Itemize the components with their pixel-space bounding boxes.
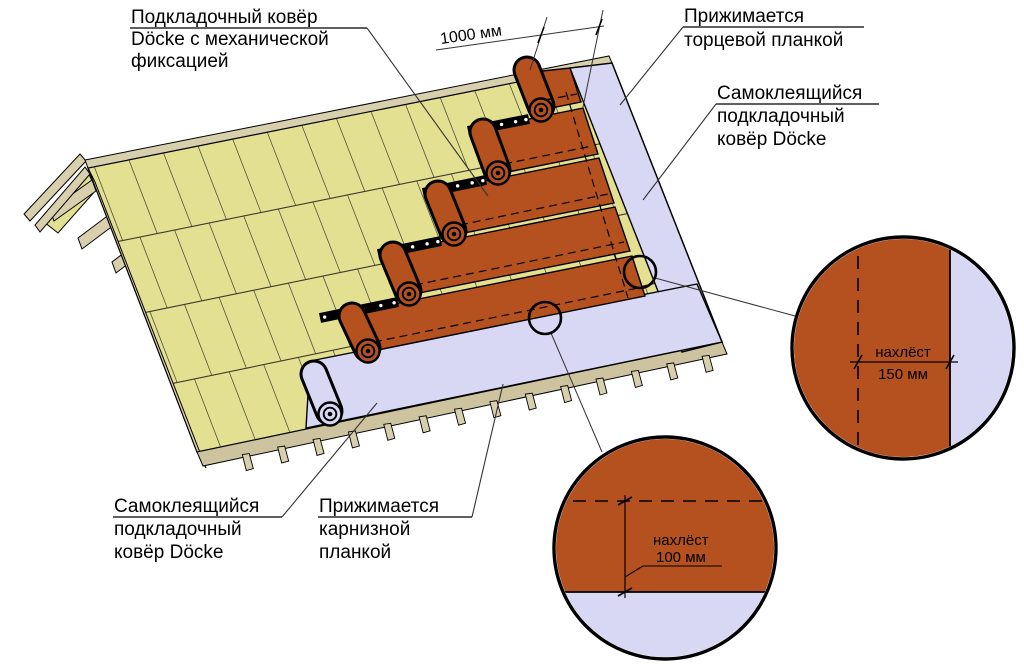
roll-spiral-center — [496, 171, 501, 176]
label-line: Подкладочный ковёр — [131, 7, 318, 28]
label-line: Самоклеящийся — [114, 496, 259, 517]
rafter-tail — [384, 423, 395, 440]
label-leader — [620, 27, 683, 105]
roll-spiral-center — [366, 349, 371, 354]
rafter-tail — [242, 454, 253, 471]
roll-spiral-center — [328, 412, 333, 417]
rafter-tail — [667, 363, 678, 380]
rafter-tail — [525, 393, 536, 410]
label-end-strip: Прижимается торцевой планкой — [684, 6, 843, 51]
label-line: подкладочный — [717, 106, 845, 127]
label-line: планкой — [319, 542, 391, 563]
rafter-tail — [313, 438, 324, 455]
label-selfadhesive-left: Самоклеящийся подкладочный ковёр Döcke — [114, 496, 259, 563]
label-selfadhesive-right: Самоклеящийся подкладочный ковёр Döcke — [717, 83, 862, 150]
diagram-canvas: 1000 мм Подкладочный ковёр Döcke с механ… — [0, 0, 1024, 667]
rafter-tail — [702, 355, 713, 372]
label-line: Прижимается — [684, 6, 804, 27]
rafter-tail — [596, 378, 607, 395]
nail-dot — [425, 242, 428, 245]
nail-dot — [500, 123, 503, 126]
overlap-value: 100 мм — [656, 549, 706, 566]
roll-spiral-center — [452, 232, 457, 237]
nail-dot — [514, 120, 517, 123]
label-line: Döcke с механической — [131, 29, 329, 50]
label-line: фиксацией — [131, 51, 229, 72]
rafter-tail — [419, 416, 430, 433]
label-line: Прижимается — [319, 496, 439, 517]
nail-dot — [481, 179, 484, 182]
label-line: подкладочный — [114, 519, 242, 540]
nail-dot — [470, 181, 473, 184]
overlap-word: нахлёст — [653, 532, 709, 549]
label-eaves-flashing: Прижимается карнизной планкой — [319, 496, 439, 563]
nail-dot — [456, 184, 459, 187]
label-line: Самоклеящийся — [717, 83, 862, 104]
label-line: ковёр Döcke — [114, 542, 223, 563]
overlap-value: 150 мм — [878, 366, 928, 383]
detail-side-overlap: нахлёст 150 мм — [791, 234, 1018, 462]
rafter-tail — [455, 408, 466, 425]
roof-underlayment-diagram: 1000 мм Подкладочный ковёр Döcke с механ… — [0, 0, 1024, 667]
nail-dot — [436, 240, 439, 243]
nail-dot — [323, 315, 326, 318]
label-line: торцевой планкой — [684, 30, 843, 51]
label-leader — [643, 104, 716, 200]
rafter-tail — [278, 446, 289, 463]
detail-sheet-area — [553, 436, 779, 592]
nail-dot — [392, 301, 395, 304]
label-line: ковёр Döcke — [717, 129, 826, 150]
nail-dot — [411, 245, 414, 248]
overlap-word: нахлёст — [875, 344, 931, 361]
dimension-roll-width-text: 1000 мм — [439, 22, 503, 47]
nail-dot — [379, 304, 382, 307]
label-line: карнизной — [319, 519, 410, 540]
rafter-tail — [348, 431, 359, 448]
roll-spiral-center — [539, 108, 544, 113]
nail-dot — [524, 118, 527, 121]
roll-spiral-center — [407, 292, 412, 297]
rafter-tail — [561, 386, 572, 403]
label-underlay-mechanical: Подкладочный ковёр Döcke с механической … — [131, 7, 329, 72]
rafter-tail — [631, 370, 642, 387]
detail-course-overlap: нахлёст 100 мм — [551, 436, 779, 662]
